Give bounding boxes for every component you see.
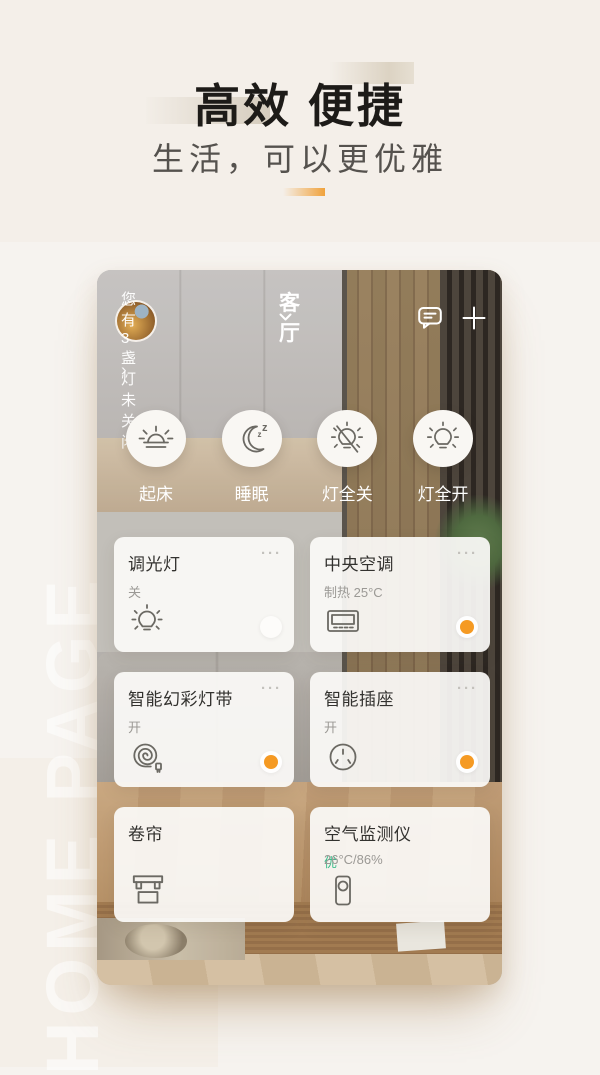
- page-subtitle: 生活，可以更优雅: [0, 134, 600, 180]
- more-menu-button[interactable]: ···: [261, 680, 282, 697]
- device-name: 智能插座: [324, 690, 394, 709]
- ac-icon: [323, 601, 363, 641]
- room-selector[interactable]: 客厅: [279, 304, 292, 330]
- message-button[interactable]: [418, 306, 442, 330]
- device-name: 智能幻彩灯带: [128, 690, 233, 709]
- blind-icon: [127, 869, 169, 911]
- lights-notification[interactable]: 您有3盏灯未关闭 ›: [121, 362, 127, 377]
- device-card-air-monitor[interactable]: 空气监测仪 优26°C/86%: [310, 807, 490, 922]
- message-icon: [418, 306, 442, 330]
- phone-mockup: 客厅 您有3盏灯未关闭 › 起床: [97, 270, 502, 985]
- more-menu-button[interactable]: ···: [457, 545, 478, 562]
- device-name: 卷帘: [128, 825, 163, 844]
- svg-text:z: z: [262, 422, 268, 434]
- scene-sleep-circle[interactable]: z z: [222, 410, 282, 467]
- lights-off-icon: [328, 420, 366, 458]
- device-card-light-strip[interactable]: 智能幻彩灯带 ··· 开: [114, 672, 294, 787]
- device-toggle[interactable]: [260, 751, 282, 773]
- toggle-on-dot: [460, 755, 474, 769]
- room-name: 客厅: [279, 287, 301, 347]
- scene-lights-off-label: 灯全关: [322, 480, 373, 505]
- device-name: 调光灯: [128, 555, 181, 574]
- device-grid: 调光灯 ··· 关 中央空调 ··· 制热 25°C 智能幻彩灯带 ···: [114, 537, 490, 922]
- device-toggle[interactable]: [456, 751, 478, 773]
- device-status: 制热 25°C: [324, 582, 476, 601]
- scene-all-lights-off-button[interactable]: 灯全关: [317, 410, 377, 505]
- device-name: 中央空调: [324, 555, 394, 574]
- scene-all-lights-on-button[interactable]: 灯全开: [413, 410, 473, 505]
- device-card-roller-blind[interactable]: 卷帘: [114, 807, 294, 922]
- sunrise-icon: [137, 420, 175, 458]
- air-monitor-icon: [323, 871, 363, 911]
- air-quality-value: 26°C/86%: [324, 852, 383, 867]
- page-title: 高效 便捷: [0, 70, 600, 136]
- toggle-on-dot: [460, 620, 474, 634]
- scene-shortcuts: 起床 z z 睡眠 灯全关: [97, 410, 502, 505]
- device-status: 关: [128, 582, 280, 601]
- svg-text:z: z: [257, 430, 261, 439]
- lights-on-icon: [424, 420, 462, 458]
- more-menu-button[interactable]: ···: [457, 680, 478, 697]
- device-status: 开: [324, 717, 476, 736]
- scene-lights-on-label: 灯全开: [417, 480, 468, 505]
- more-menu-button[interactable]: ···: [261, 545, 282, 562]
- scene-wake-button[interactable]: 起床: [126, 410, 186, 505]
- device-card-central-ac[interactable]: 中央空调 ··· 制热 25°C: [310, 537, 490, 652]
- scene-wake-label: 起床: [139, 480, 173, 505]
- device-name: 空气监测仪: [324, 825, 412, 844]
- device-card-smart-socket[interactable]: 智能插座 ··· 开: [310, 672, 490, 787]
- deco-accent-bar: [283, 188, 325, 196]
- scene-wake-circle[interactable]: [126, 410, 186, 467]
- plus-icon: [462, 306, 486, 330]
- device-toggle[interactable]: [456, 616, 478, 638]
- device-card-dimmer-light[interactable]: 调光灯 ··· 关: [114, 537, 294, 652]
- add-device-button[interactable]: [462, 306, 486, 330]
- scene-sleep-label: 睡眠: [235, 480, 269, 505]
- socket-icon: [323, 736, 363, 776]
- moon-icon: z z: [233, 420, 271, 458]
- toggle-on-dot: [264, 755, 278, 769]
- scene-lights-off-circle[interactable]: [317, 410, 377, 467]
- scene-sleep-button[interactable]: z z 睡眠: [222, 410, 282, 505]
- light-strip-icon: [127, 736, 167, 776]
- device-toggle[interactable]: [260, 616, 282, 638]
- bulb-icon: [127, 601, 167, 641]
- device-status: 开: [128, 717, 280, 736]
- scene-lights-on-circle[interactable]: [413, 410, 473, 467]
